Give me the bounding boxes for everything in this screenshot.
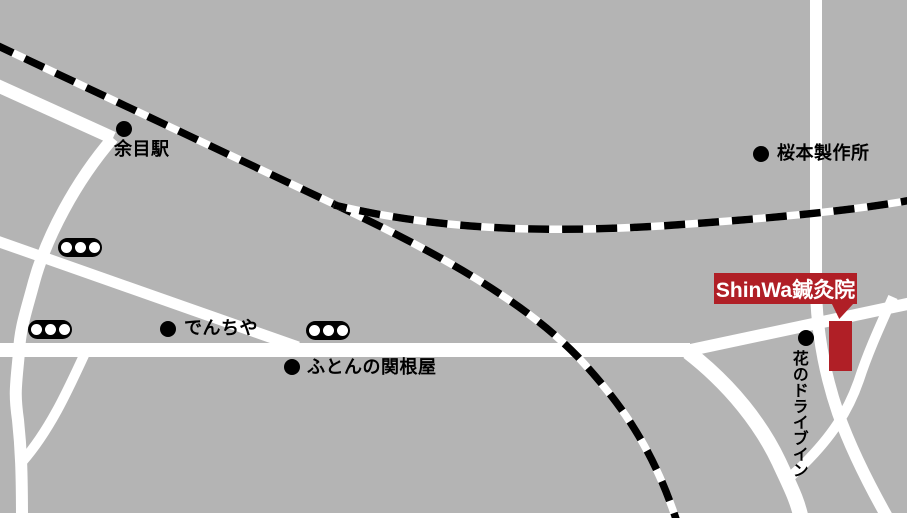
traffic-light-icon bbox=[306, 321, 350, 340]
road-bottom-edge bbox=[0, 513, 907, 518]
road-network bbox=[0, 0, 907, 518]
traffic-light-lamp bbox=[323, 325, 334, 336]
map-canvas bbox=[0, 0, 907, 518]
route-map: 余目駅 桜本製作所 でんちや ふとんの関根屋 花のドライブイン ShinWa鍼灸… bbox=[0, 0, 907, 518]
clinic-label: ShinWa鍼灸院 bbox=[716, 274, 855, 304]
futon-dot bbox=[284, 359, 300, 375]
futon-label: ふとんの関根屋 bbox=[307, 358, 437, 377]
denchiya-dot bbox=[160, 321, 176, 337]
factory-dot bbox=[753, 146, 769, 162]
station-dot bbox=[116, 121, 132, 137]
drivein-label: 花のドライブイン bbox=[789, 350, 806, 510]
clinic-building bbox=[829, 321, 852, 371]
traffic-light-lamp bbox=[31, 324, 42, 335]
factory-label: 桜本製作所 bbox=[777, 144, 870, 163]
clinic-label-box: ShinWa鍼灸院 bbox=[714, 273, 857, 304]
station-label: 余目駅 bbox=[114, 140, 170, 159]
traffic-light-lamp bbox=[337, 325, 348, 336]
denchiya-label: でんちや bbox=[184, 319, 258, 338]
traffic-light-lamp bbox=[309, 325, 320, 336]
drivein-dot bbox=[798, 330, 814, 346]
traffic-light-lamp bbox=[59, 324, 70, 335]
traffic-light-lamp bbox=[75, 242, 86, 253]
traffic-light-lamp bbox=[45, 324, 56, 335]
road-lower-left bbox=[22, 351, 86, 462]
road-wide-curve bbox=[688, 352, 802, 518]
traffic-light-lamp bbox=[61, 242, 72, 253]
traffic-light-icon bbox=[58, 238, 102, 257]
traffic-light-icon bbox=[28, 320, 72, 339]
traffic-light-lamp bbox=[89, 242, 100, 253]
